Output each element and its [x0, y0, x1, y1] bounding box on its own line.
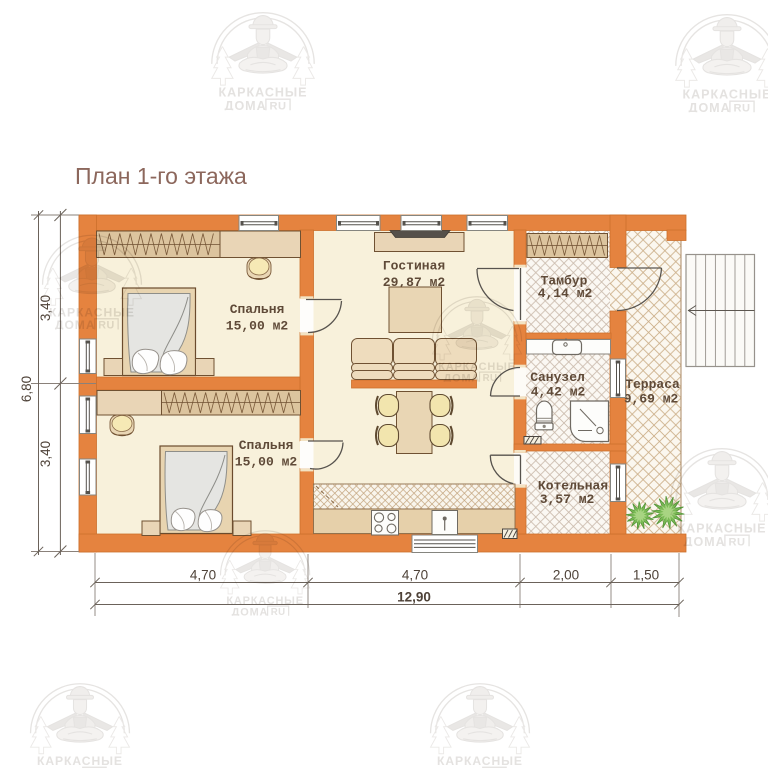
svg-text:План 1-го этажа: План 1-го этажа — [75, 163, 247, 189]
svg-text:4,70: 4,70 — [402, 568, 428, 583]
svg-text:6,80: 6,80 — [19, 376, 34, 402]
svg-text:Спальня: Спальня — [239, 438, 294, 453]
svg-text:2,00: 2,00 — [553, 568, 579, 583]
svg-text:4,70: 4,70 — [190, 568, 216, 583]
svg-text:3,40: 3,40 — [38, 441, 53, 467]
svg-text:12,90: 12,90 — [397, 590, 431, 605]
svg-text:Спальня: Спальня — [230, 302, 285, 317]
svg-text:15,00 м2: 15,00 м2 — [235, 455, 298, 470]
svg-text:Санузел: Санузел — [530, 370, 585, 385]
svg-text:Терраса: Терраса — [625, 377, 680, 392]
svg-text:4,14 м2: 4,14 м2 — [538, 286, 593, 301]
svg-text:4,42 м2: 4,42 м2 — [531, 385, 586, 400]
svg-text:Гостиная: Гостиная — [383, 259, 445, 274]
svg-text:15,00 м2: 15,00 м2 — [226, 319, 289, 334]
svg-text:1,50: 1,50 — [633, 568, 659, 583]
svg-text:3,57 м2: 3,57 м2 — [540, 492, 595, 507]
svg-text:9,69 м2: 9,69 м2 — [624, 392, 679, 407]
